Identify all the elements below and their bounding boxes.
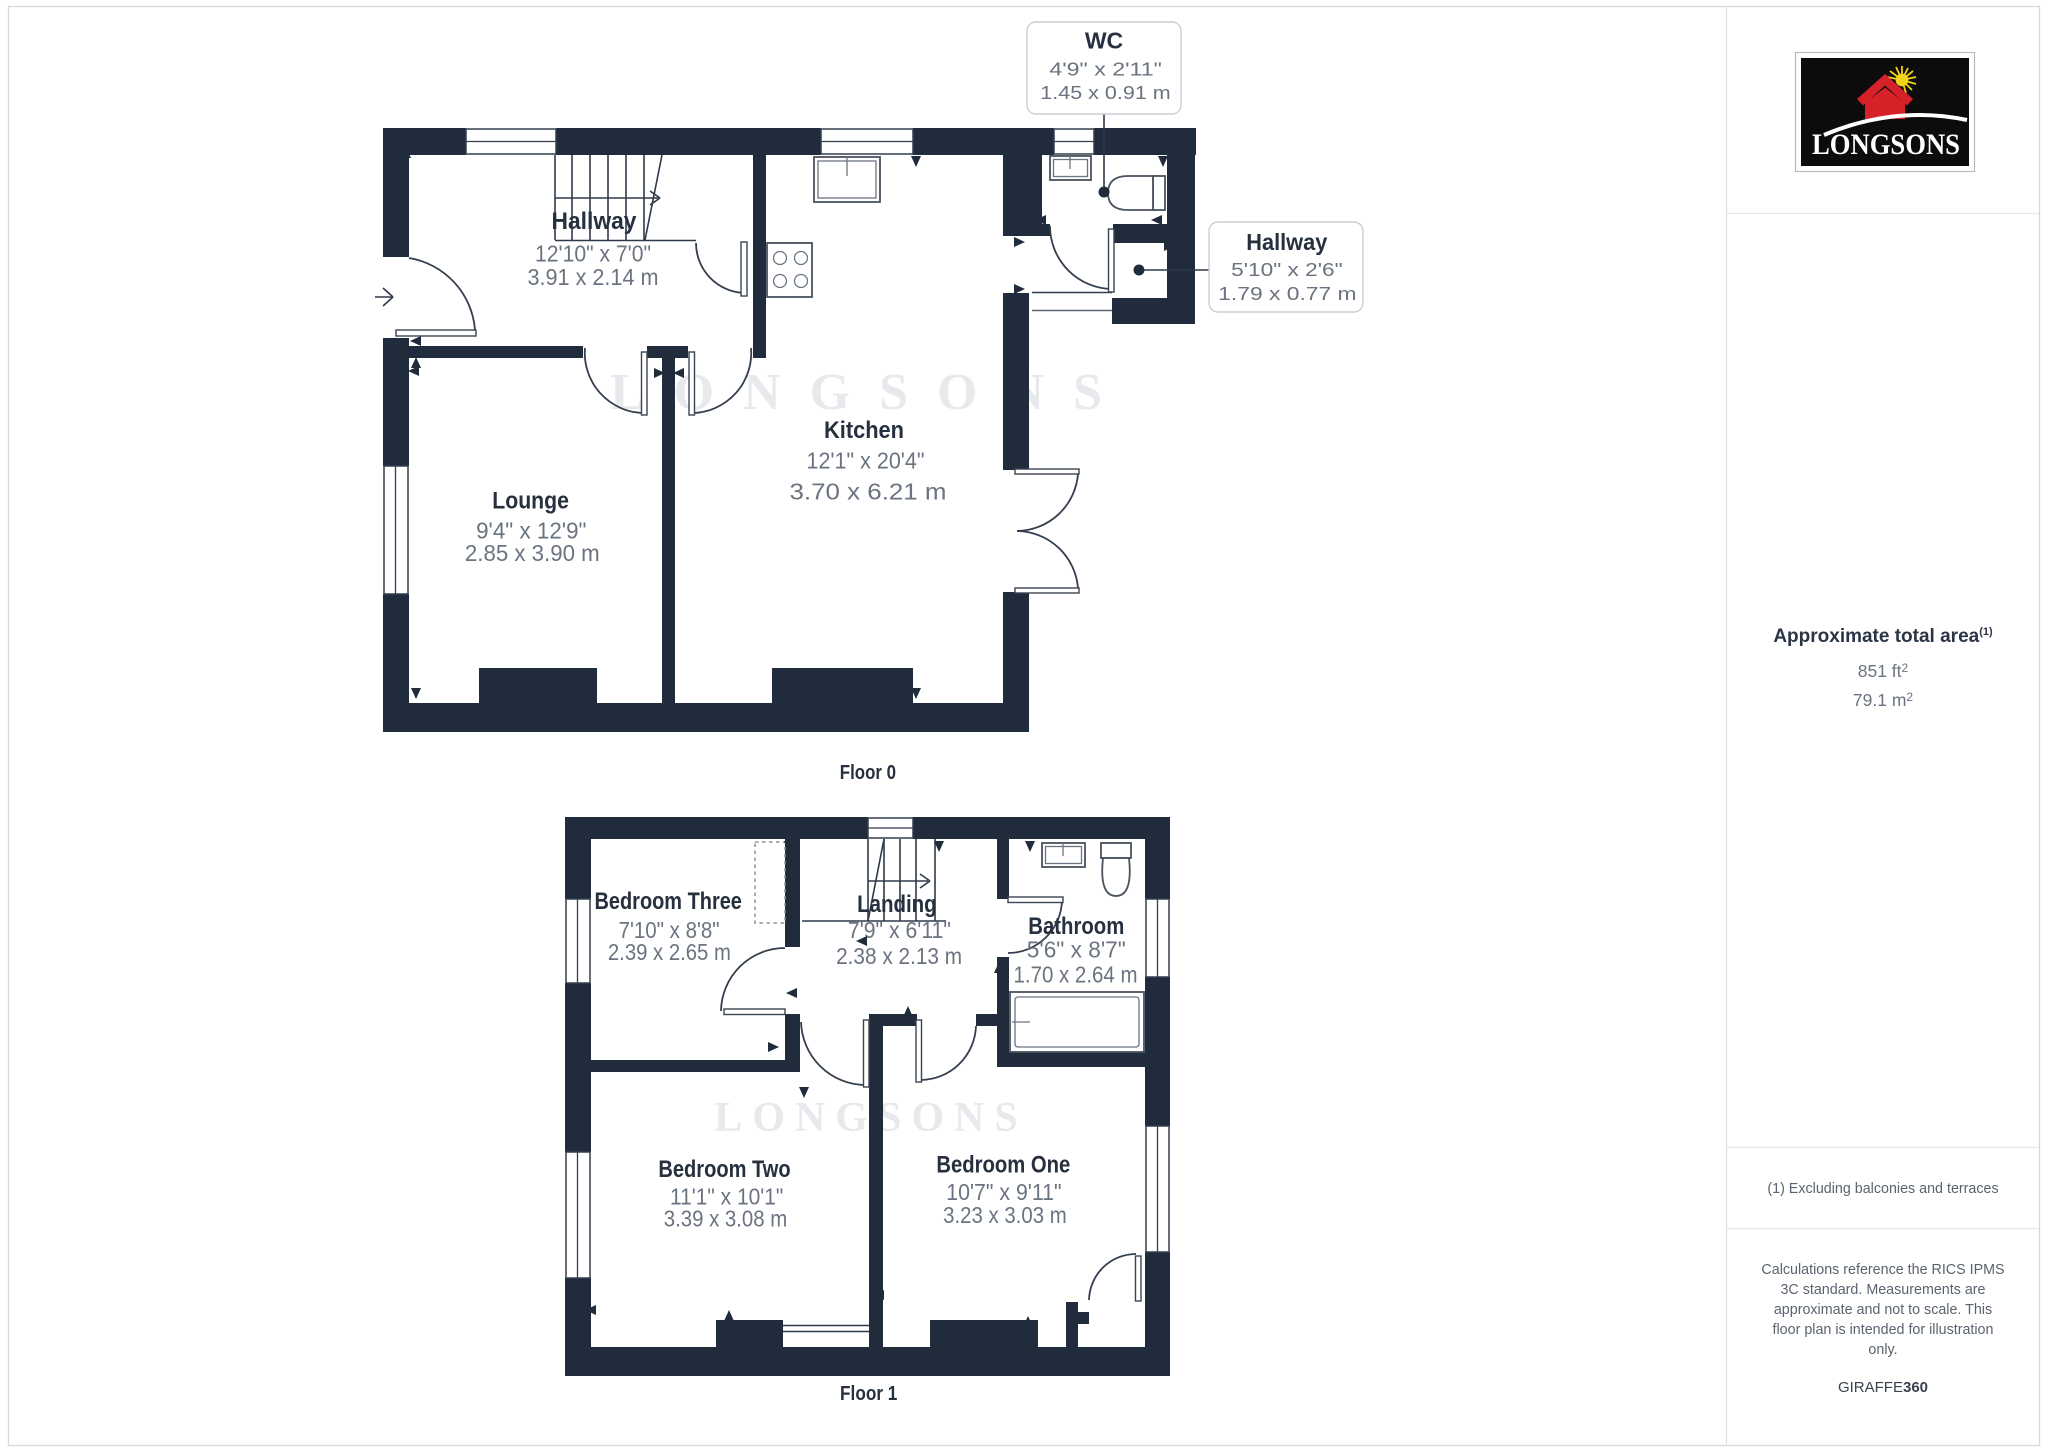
svg-text:3.23 x 3.03 m: 3.23 x 3.03 m (943, 1202, 1067, 1228)
svg-text:851 ft2: 851 ft2 (1858, 661, 1909, 681)
svg-text:1.45 x 0.91 m: 1.45 x 0.91 m (1040, 82, 1170, 103)
svg-text:LONGSONS: LONGSONS (610, 364, 1131, 421)
svg-text:3.91 x 2.14 m: 3.91 x 2.14 m (528, 264, 659, 290)
svg-text:Kitchen: Kitchen (824, 417, 904, 444)
svg-text:4'9" x 2'11": 4'9" x 2'11" (1049, 58, 1162, 79)
svg-text:1.79 x 0.77 m: 1.79 x 0.77 m (1218, 283, 1356, 304)
svg-text:12'10" x 7'0": 12'10" x 7'0" (535, 241, 651, 267)
svg-text:Bedroom One: Bedroom One (936, 1151, 1070, 1178)
svg-text:only.: only. (1868, 1342, 1897, 1358)
svg-text:Calculations reference the RIC: Calculations reference the RICS IPMS (1761, 1262, 2004, 1278)
svg-text:3.70 x 6.21 m: 3.70 x 6.21 m (790, 479, 947, 505)
svg-text:floor plan is intended for ill: floor plan is intended for illustration (1773, 1322, 1994, 1338)
svg-text:5'6" x 8'7": 5'6" x 8'7" (1027, 937, 1126, 963)
svg-text:Bedroom Two: Bedroom Two (658, 1156, 790, 1183)
svg-text:2.39 x 2.65 m: 2.39 x 2.65 m (608, 939, 731, 965)
svg-text:Hallway: Hallway (552, 208, 637, 235)
svg-text:WC: WC (1085, 28, 1123, 54)
svg-text:2.38 x 2.13 m: 2.38 x 2.13 m (836, 943, 962, 969)
svg-text:Bedroom Three: Bedroom Three (595, 888, 742, 915)
svg-text:10'7" x 9'11": 10'7" x 9'11" (946, 1179, 1061, 1205)
svg-text:Landing: Landing (857, 891, 937, 918)
svg-text:Lounge: Lounge (492, 487, 569, 514)
svg-text:(1) Excluding balconies and te: (1) Excluding balconies and terraces (1767, 1181, 1998, 1197)
svg-text:12'1" x 20'4": 12'1" x 20'4" (807, 448, 925, 474)
svg-text:3.39 x 3.08 m: 3.39 x 3.08 m (664, 1206, 788, 1232)
svg-text:3C standard. Measurements are: 3C standard. Measurements are (1780, 1282, 1985, 1298)
svg-text:LONGSONS: LONGSONS (1812, 128, 1960, 161)
svg-text:1.70 x 2.64 m: 1.70 x 2.64 m (1014, 961, 1138, 987)
svg-text:5'10" x 2'6": 5'10" x 2'6" (1231, 259, 1343, 280)
svg-text:Floor 0: Floor 0 (840, 762, 896, 784)
svg-text:2.85 x 3.90 m: 2.85 x 3.90 m (465, 540, 600, 566)
svg-text:GIRAFFE360: GIRAFFE360 (1838, 1379, 1928, 1396)
svg-text:approximate and not to scale.: approximate and not to scale. This (1774, 1302, 1992, 1318)
svg-text:Floor 1: Floor 1 (840, 1383, 897, 1405)
svg-text:Approximate total area(1): Approximate total area(1) (1773, 626, 1993, 647)
svg-text:Hallway: Hallway (1246, 229, 1327, 255)
svg-text:79.1 m2: 79.1 m2 (1853, 690, 1914, 710)
